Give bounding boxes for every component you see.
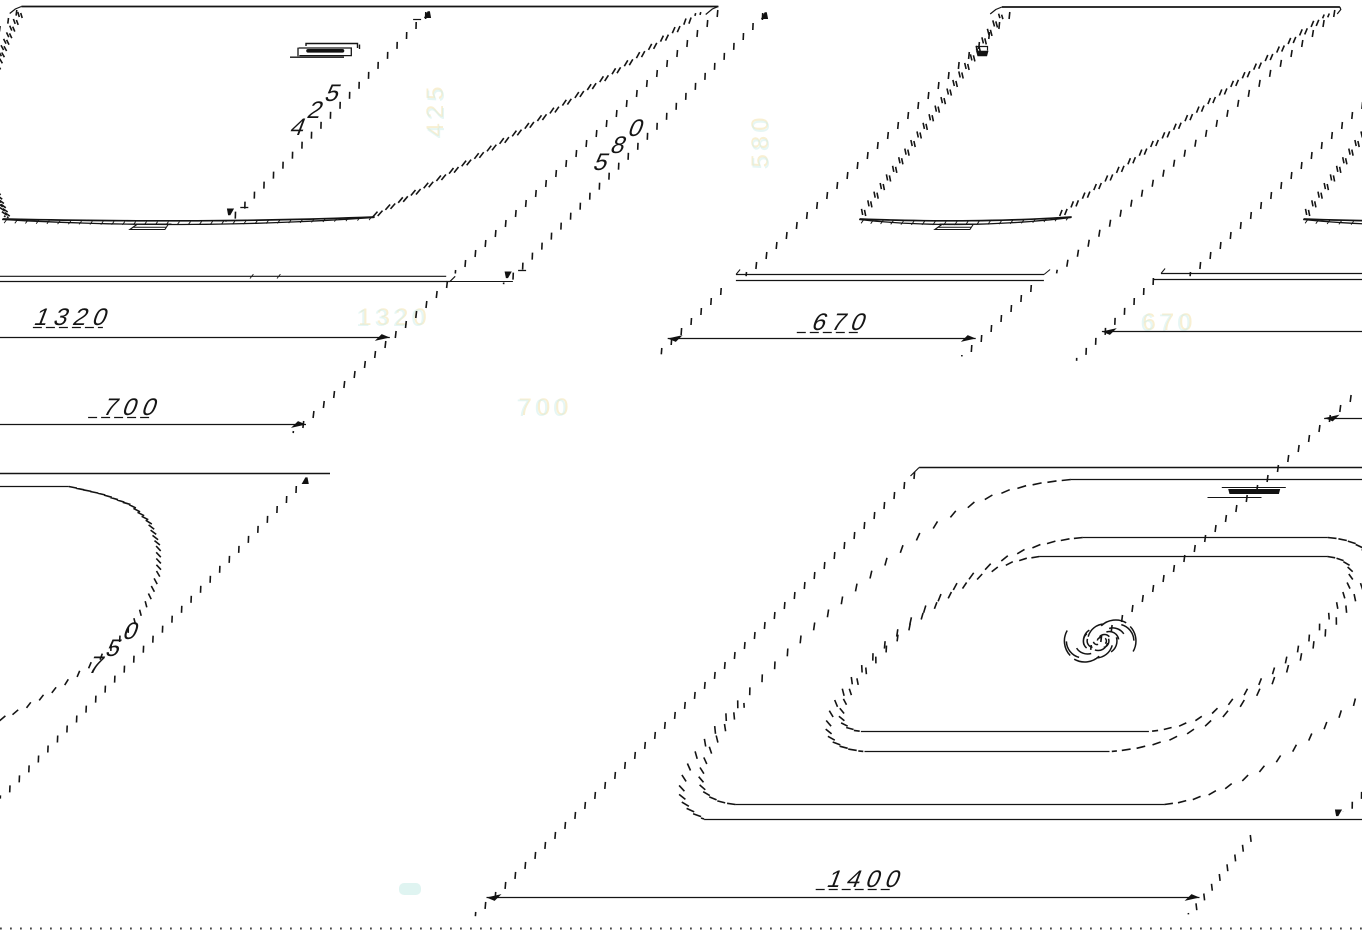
- svg-text:580: 580: [748, 114, 775, 169]
- svg-text:670: 670: [1140, 310, 1195, 337]
- svg-text:700: 700: [516, 395, 571, 422]
- svg-text:1400: 1400: [823, 867, 910, 893]
- svg-text:1320: 1320: [356, 305, 429, 332]
- svg-text:425: 425: [423, 83, 450, 138]
- svg-text:670: 670: [808, 310, 876, 336]
- svg-text:1320: 1320: [31, 305, 118, 331]
- svg-text:700: 700: [99, 395, 167, 421]
